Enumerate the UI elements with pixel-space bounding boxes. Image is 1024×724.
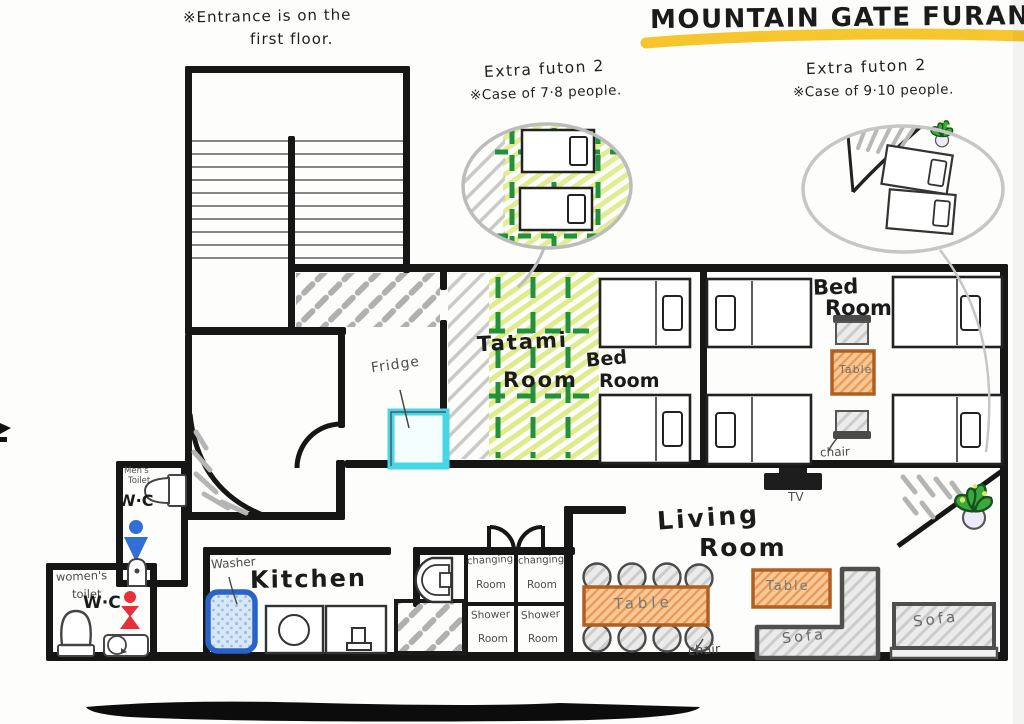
desk-chair [836,411,868,433]
tv-icon [764,473,822,490]
urinal-icon [128,559,146,586]
fridge [391,390,446,466]
shower-room-1-label-1: Shower [471,609,510,621]
side-table-label: Table [766,580,810,593]
tatami-room-label-1: Tatami [477,330,569,356]
futon [881,145,952,194]
futon [886,189,955,234]
shower-room-2-label-2: Room [528,634,558,645]
shower-room-1-label-2: Room [478,634,508,645]
washing-machine [208,592,255,651]
male-figure-icon [124,520,148,562]
mens-wc-label: W·C [118,493,153,509]
bedroom-chair-label: chair [820,445,850,458]
female-figure-icon [120,591,140,629]
tv-label: TV [788,491,804,503]
changing-room-1-label-2: Room [476,580,506,591]
mens-toilet-label-2: Toilet [128,477,150,486]
kitchen-label: Kitchen [250,566,367,592]
washbasin [416,558,452,602]
page-title: MOUNTAIN GATE FURANO [650,3,1024,33]
womens-wc-label: W·C [83,595,121,612]
dining-table-label: Table [614,595,673,612]
floorplan-page: { "title": "MOUNTAIN GATE FURANO", "note… [0,0,1024,724]
bedroom-right-label-2: Room [825,298,892,319]
bed [600,279,690,347]
callout-left [458,118,635,287]
living-room-label-1: Living [656,501,761,533]
bed [893,277,1002,347]
callout-right-case: ※Case of 9·10 people. [793,84,954,100]
bed [893,395,1002,464]
living-room-label-2: Room [699,535,787,560]
changing-room-2-label-1: changing [518,555,564,567]
sink-cabinet-icon [104,635,148,656]
staircase [192,141,403,258]
desk-chair [836,322,868,344]
bedroom-center-label-2: Room [599,372,660,391]
bed [707,395,811,464]
shower-room-2-label-1: Shower [521,609,561,622]
washer-label: Washer [211,555,256,570]
floorplan-drawing [0,0,1024,724]
futon [520,188,592,230]
futon [522,130,594,172]
potted-plant-icon [955,484,992,529]
entrance-note-line1: ※Entrance is on the [183,8,352,26]
changing-room-2-label-2: Room [527,580,557,591]
womens-toilet-label-1: women's [56,570,108,583]
bedroom-furniture [828,315,874,452]
mens-toilet-label-1: Men's [124,467,149,476]
bed [600,395,690,463]
beds [600,277,1002,464]
tatami-floor [489,272,599,461]
toilet-icon [58,611,94,656]
title-underline [646,34,1024,46]
bedroom-table-label: Table [839,364,872,375]
bedroom-center-label-1: Bed [585,348,627,370]
hatched-block [396,601,464,653]
entrance-note-line2: first floor. [250,32,333,47]
bed [707,279,811,347]
living-chair-label: chair [688,643,721,658]
tatami-room-label-2: Room [503,370,578,391]
